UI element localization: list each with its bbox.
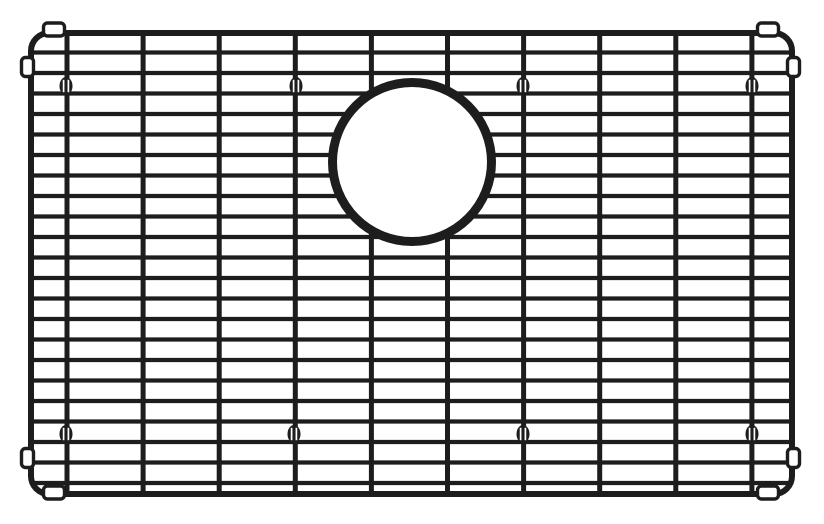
grid-foot (60, 425, 73, 443)
grid-foot (288, 425, 301, 443)
corner-bumper-vertical (22, 449, 34, 468)
grid-foot-body (746, 425, 759, 443)
grid-foot-body (60, 77, 73, 95)
grid-foot-body (746, 77, 759, 95)
grid-foot (60, 77, 73, 95)
grid-foot-body (517, 425, 530, 443)
corner-bumper-vertical (788, 58, 800, 77)
corner-bumper-horizontal (758, 486, 779, 499)
grid-foot-body (290, 77, 303, 95)
grid-foot (517, 77, 530, 95)
corner-bumper-horizontal (44, 23, 65, 36)
grid-foot (746, 77, 759, 95)
corner-bumper-vertical (788, 449, 800, 468)
corner-bumper-horizontal (44, 486, 65, 499)
grid-foot (746, 425, 759, 443)
grid-foot (517, 425, 530, 443)
corner-bumper-vertical (22, 58, 34, 77)
sink-grid-drawing (0, 0, 824, 524)
drain-cutout (333, 83, 492, 242)
grid-foot-body (288, 425, 301, 443)
sink-grid-illustration (0, 0, 824, 524)
grid-foot (290, 77, 303, 95)
grid-foot-body (517, 77, 530, 95)
grid-foot-body (60, 425, 73, 443)
corner-bumper-horizontal (758, 23, 779, 36)
